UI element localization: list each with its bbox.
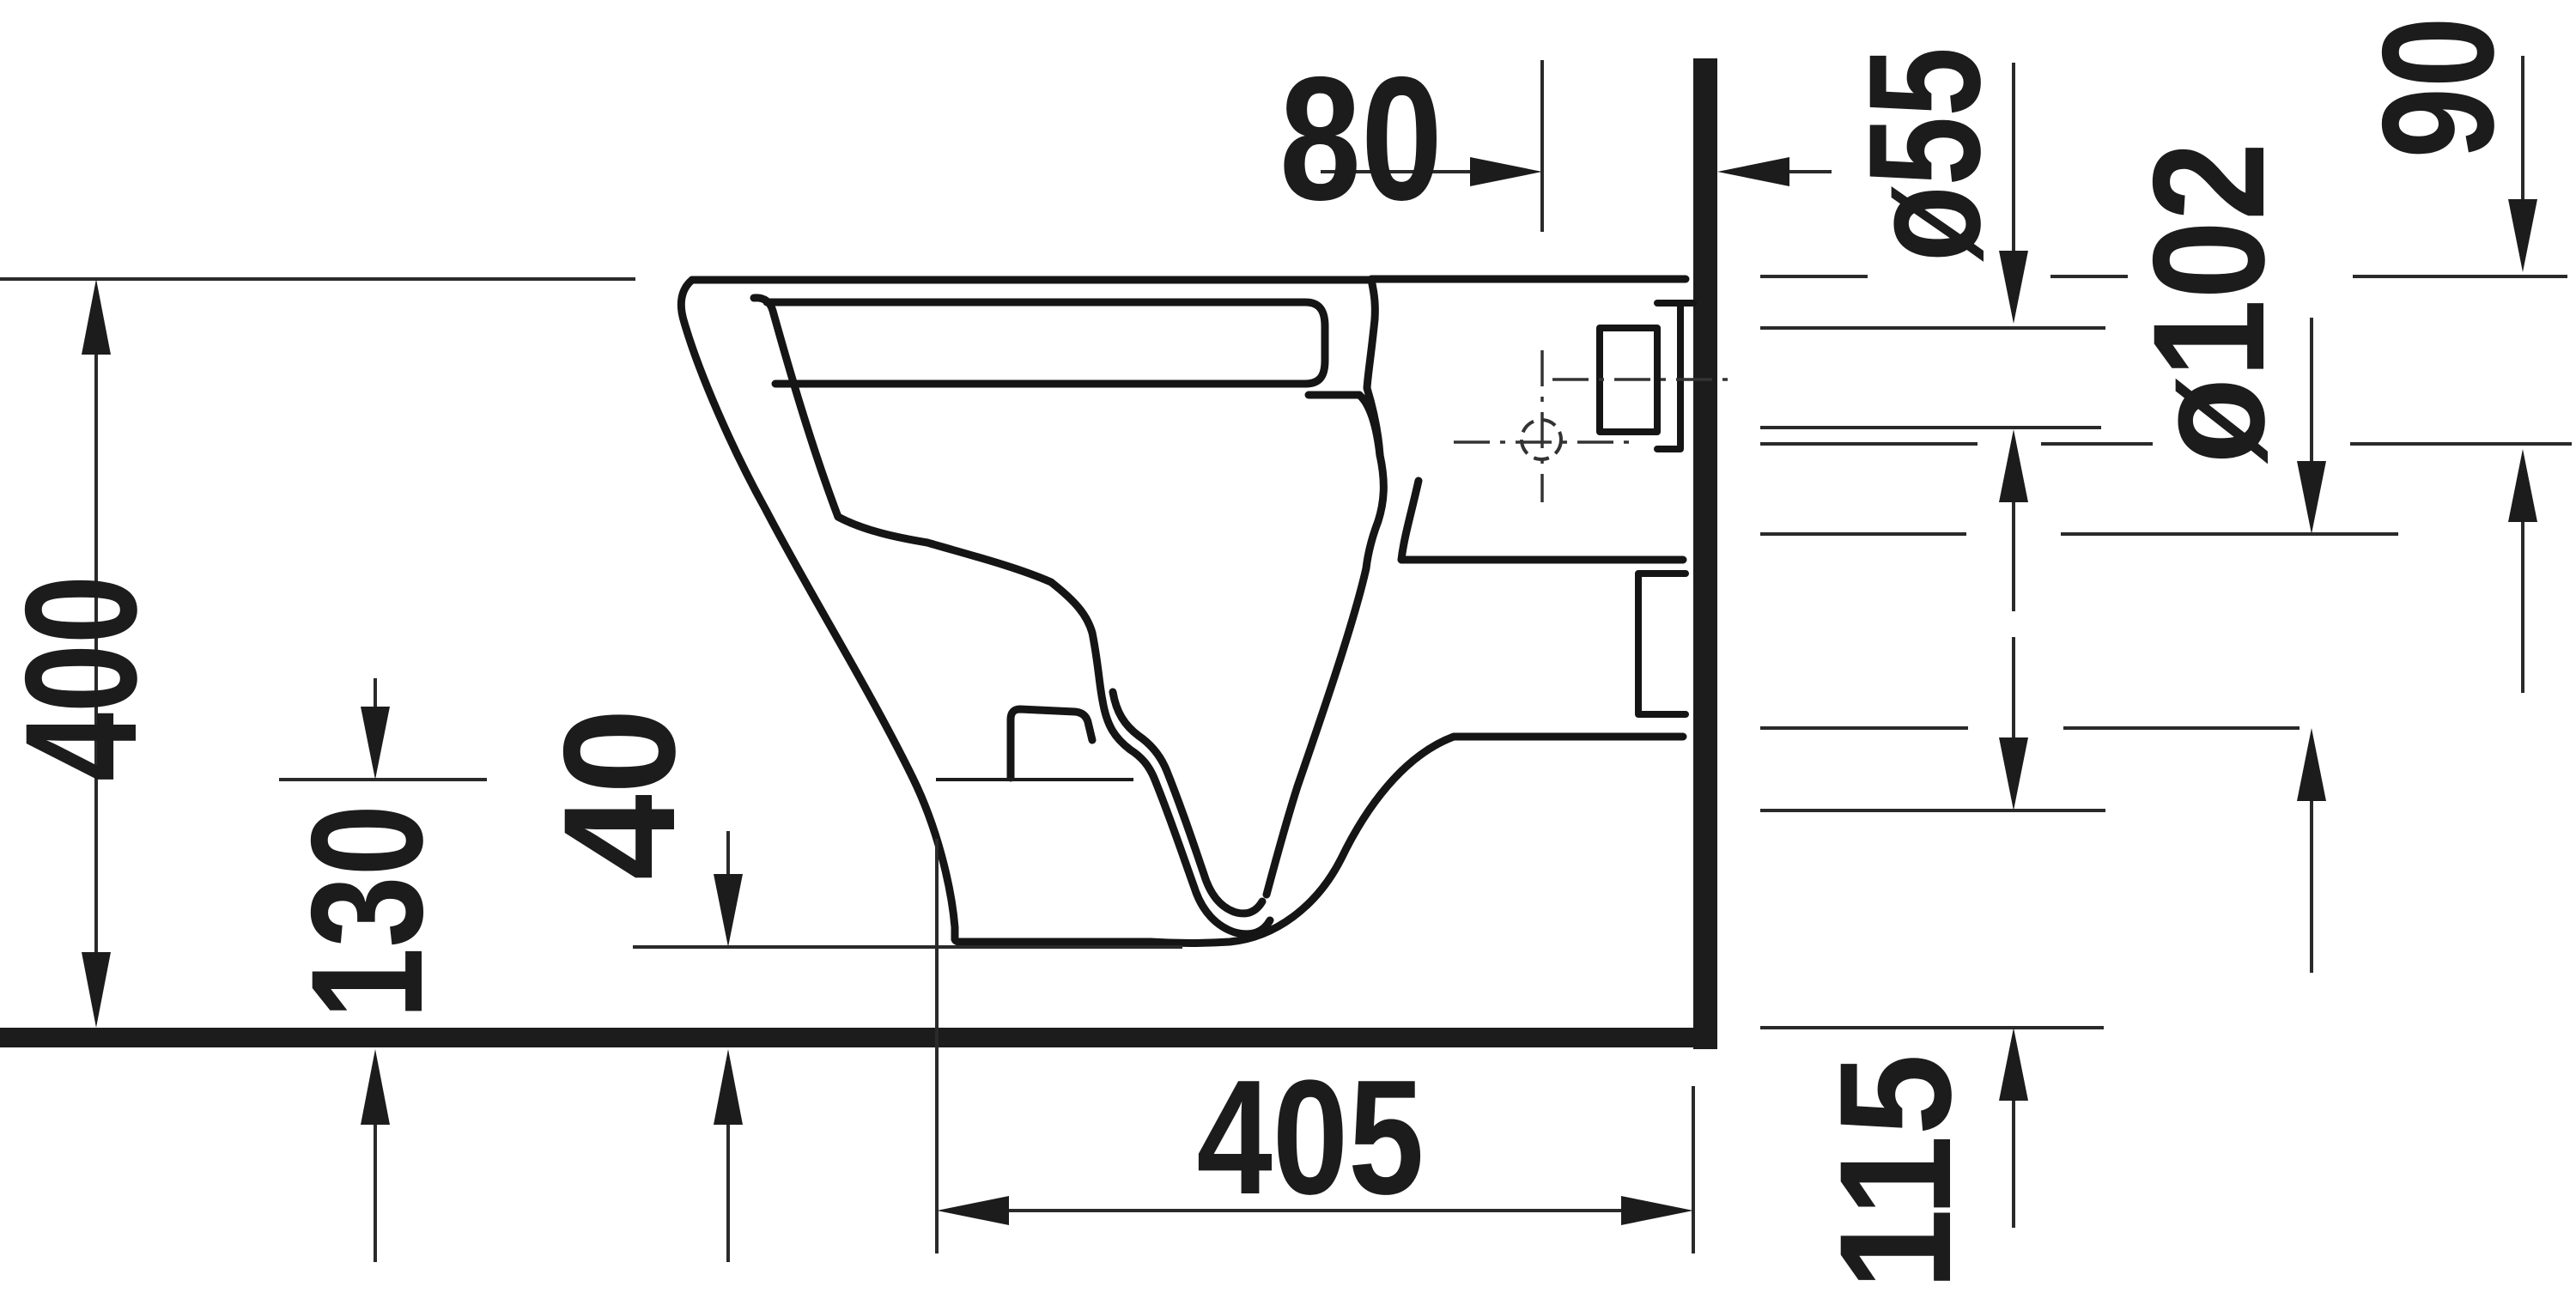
label-top-wall-offset: 80 — [1279, 40, 1443, 237]
seat-profile — [767, 302, 1325, 384]
toilet-section-drawing: 400 130 40 80 405 ø55 ø102 90 115 — [0, 0, 2576, 1305]
front-inner-profile — [754, 298, 1103, 701]
label-underside-height: 130 — [279, 804, 456, 1019]
technical-drawing-canvas: 400 130 40 80 405 ø55 ø102 90 115 — [0, 0, 2576, 1305]
arrow-115-down — [1999, 737, 2028, 810]
bottom-profile — [955, 737, 1683, 944]
arrow-40-down — [714, 874, 743, 947]
arrow-80-left — [1717, 157, 1789, 186]
floor-section — [0, 1028, 1717, 1047]
inlet-baffle — [1011, 709, 1092, 778]
label-rim-height: 400 — [0, 575, 170, 781]
outlet-channel-inner — [1267, 455, 1383, 895]
rim-back-junction — [1359, 395, 1380, 455]
label-front-bottom-gap: 40 — [532, 708, 708, 880]
arrow-405-left — [937, 1196, 1009, 1225]
wall-section — [1693, 58, 1717, 1049]
arrow-405-right — [1621, 1196, 1693, 1225]
arrow-400-up — [82, 279, 111, 355]
arrow-40-up — [714, 1049, 743, 1125]
arrow-400-down — [82, 952, 111, 1028]
label-outlet-height: 115 — [1807, 1054, 1984, 1290]
front-outer-profile — [681, 280, 955, 939]
lid-back-step — [1371, 280, 1375, 319]
trap-downleg-inner — [1113, 692, 1262, 913]
label-supply-diameter: ø55 — [1837, 47, 2014, 262]
arrow-90-up — [2508, 449, 2537, 522]
arrow-102-up — [2297, 728, 2326, 801]
label-bottom-depth: 405 — [1197, 1047, 1425, 1229]
label-outlet-diameter: ø102 — [2121, 143, 2298, 464]
outlet-socket — [1638, 574, 1686, 714]
arrow-55-up — [1999, 429, 2028, 502]
arrow-130-down — [361, 707, 390, 780]
arrow-130-up — [361, 1049, 390, 1125]
label-supply-drop: 90 — [2350, 17, 2527, 159]
arrow-90-down — [2508, 199, 2537, 272]
arrow-80-right — [1470, 157, 1542, 186]
arrow-115-up — [1999, 1028, 2028, 1101]
centerlines — [1454, 350, 1730, 502]
arrow-102-down — [2297, 461, 2326, 534]
supply-connection-step — [1657, 303, 1693, 449]
